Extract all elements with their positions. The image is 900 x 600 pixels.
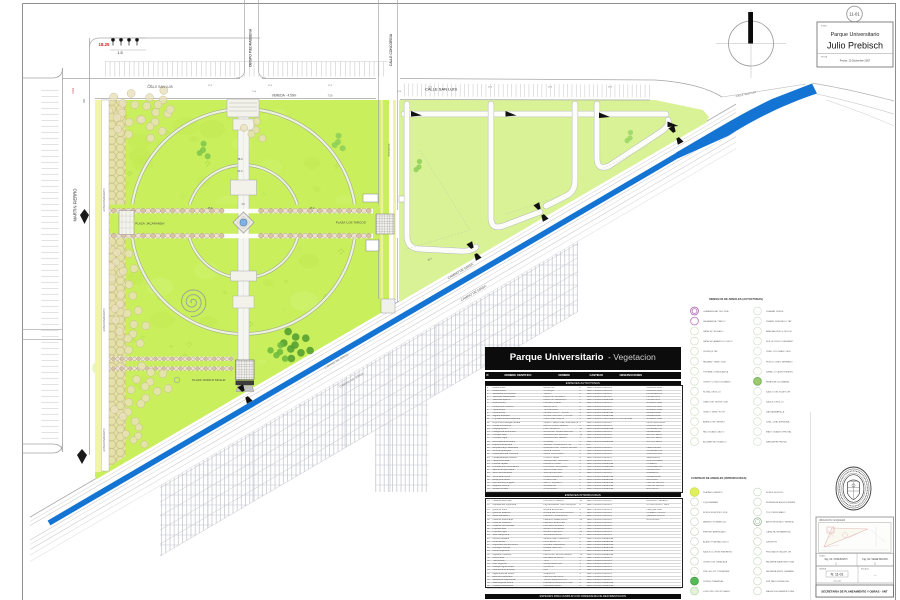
svg-text:N: 11-01: N: 11-01 xyxy=(831,573,844,577)
svg-text:LIQUIDAMBAR: LIQUIDAMBAR xyxy=(703,501,718,504)
svg-text:CALLE CONCORDIA: CALLE CONCORDIA xyxy=(389,33,393,66)
svg-text:PATAGUA TUCUMANA: PATAGUA TUCUMANA xyxy=(766,380,789,383)
svg-text:HORCO CEBIL SERRANO: HORCO CEBIL SERRANO xyxy=(766,360,793,363)
svg-text:LIGUSTRO DISCIPLINADO: LIGUSTRO DISCIPLINADO xyxy=(703,590,731,593)
svg-text:CATALPA ORNAMENTAL: CATALPA ORNAMENTAL xyxy=(766,531,792,534)
svg-text:3.04: 3.04 xyxy=(71,88,75,94)
svg-text:18.25: 18.25 xyxy=(99,42,111,47)
svg-text:CEDRO COYA TUCUMANO: CEDRO COYA TUCUMANO xyxy=(703,380,731,383)
svg-text:TIPUANA / TIPA BLANCA: TIPUANA / TIPA BLANCA xyxy=(703,370,729,373)
svg-text:ROBLE SEDOSO: ROBLE SEDOSO xyxy=(766,492,784,494)
svg-text:FECHA: FECHA xyxy=(821,56,828,59)
svg-text:ESTACIONAMIENTO: ESTACIONAMIENTO xyxy=(103,428,106,451)
svg-text:VIRARU DUAZNILLO TAY: VIRARU DUAZNILLO TAY xyxy=(766,320,792,323)
svg-text:PEZUNA DE VACA FLOR: PEZUNA DE VACA FLOR xyxy=(766,550,792,553)
svg-text:OBISPO PIEDRABUENA: OBISPO PIEDRABUENA xyxy=(249,28,253,67)
svg-text:BICISENDA: BICISENDA xyxy=(388,143,391,156)
svg-text:ESCALA: ESCALA xyxy=(861,568,869,571)
svg-text:MAGNOLIA GRANDIFLORA: MAGNOLIA GRANDIFLORA xyxy=(766,590,794,593)
svg-text:LAMINA: LAMINA xyxy=(819,568,827,571)
svg-text:PALO BLANCO ALTO: PALO BLANCO ALTO xyxy=(703,431,725,434)
svg-text:PALMERA FENIX CANARIA: PALMERA FENIX CANARIA xyxy=(766,570,794,573)
svg-text:ROBLE EUROPEO GDE: ROBLE EUROPEO GDE xyxy=(703,512,728,514)
svg-text:TILO PERFUMADO: TILO PERFUMADO xyxy=(766,511,786,514)
svg-text:4.9: 4.9 xyxy=(82,99,86,103)
svg-text:CEDRO DEL HIMALAYA: CEDRO DEL HIMALAYA xyxy=(703,560,728,563)
svg-text:CANTIDAD DE ARBOLES (INTROD: CANTIDAD DE ARBOLES (INTRODUCIDAS) xyxy=(691,476,747,480)
svg-text:CRESPON: CRESPON xyxy=(766,542,777,544)
svg-text:PLAZA 'HORCO MOLLE': PLAZA 'HORCO MOLLE' xyxy=(192,378,226,382)
svg-text:Julio Prebisch: Julio Prebisch xyxy=(827,41,883,51)
svg-text:CHANAR VERDE: CHANAR VERDE xyxy=(766,310,784,313)
svg-text:LAPACHO ROSADO: LAPACHO ROSADO xyxy=(703,330,724,333)
svg-text:KIRI PAULOWNIA GDE: KIRI PAULOWNIA GDE xyxy=(766,580,790,583)
svg-text:LANZA AMARILLA: LANZA AMARILLA xyxy=(766,411,785,414)
svg-text:JACARANDA / TARCO: JACARANDA / TARCO xyxy=(703,320,726,323)
svg-text:PALMERA WASHINGTONIA: PALMERA WASHINGTONIA xyxy=(766,560,794,563)
svg-text:SAUCE CRIOLLO: SAUCE CRIOLLO xyxy=(766,400,784,403)
svg-text:ESTACIONAMIENTO: ESTACIONAMIENTO xyxy=(103,188,106,211)
svg-text:VEREDA - 4.50m: VEREDA - 4.50m xyxy=(272,94,297,98)
svg-text:1.5: 1.5 xyxy=(117,51,122,55)
svg-text:SAUCO DEL NOA FLOR: SAUCO DEL NOA FLOR xyxy=(766,390,791,393)
svg-text:Fig. 01: CONJUNTO: Fig. 01: CONJUNTO xyxy=(825,558,848,561)
svg-text:ALGARROBO BLANCO: ALGARROBO BLANCO xyxy=(703,441,727,444)
svg-text:Fig. 02: VEGETACION: Fig. 02: VEGETACION xyxy=(862,558,887,561)
svg-text:45.0: 45.0 xyxy=(310,207,315,210)
svg-text:NANGAPIRI FRUTAL: NANGAPIRI FRUTAL xyxy=(766,441,788,444)
svg-text:ALAMO PLATEADO ALTO: ALAMO PLATEADO ALTO xyxy=(703,541,729,544)
svg-text:GUARANGUAY DEL NOA: GUARANGUAY DEL NOA xyxy=(703,310,729,313)
svg-text:45.0: 45.0 xyxy=(208,207,213,210)
svg-text:PLANO: PLANO xyxy=(821,25,828,28)
svg-text:SAUCE LLORON RIBERENO: SAUCE LLORON RIBERENO xyxy=(703,550,732,553)
svg-text:NOGAL CRIOLLO: NOGAL CRIOLLO xyxy=(703,390,721,393)
svg-text:CEBIL COLORADO GDE: CEBIL COLORADO GDE xyxy=(766,350,791,353)
svg-text:38.9: 38.9 xyxy=(237,157,243,161)
svg-text:CIPRES PIRAMIDAL: CIPRES PIRAMIDAL xyxy=(703,580,724,583)
svg-text:PINO ELLIOTTI PERENNE: PINO ELLIOTTI PERENNE xyxy=(703,571,730,573)
svg-text:SECRETARIA DE PLANEAMIENTO Y O: SECRETARIA DE PLANEAMIENTO Y OBRAS - UNT xyxy=(821,589,887,593)
svg-text:CEIBO / SEIBO FLOR: CEIBO / SEIBO FLOR xyxy=(703,412,725,414)
svg-text:11-01: 11-01 xyxy=(849,12,860,17)
svg-text:PLAZA 'JACARANDA': PLAZA 'JACARANDA' xyxy=(135,222,165,226)
svg-text:7.50: 7.50 xyxy=(328,95,333,98)
svg-text:31.6: 31.6 xyxy=(237,169,243,173)
svg-text:MORERA BLANCA SOMBRA: MORERA BLANCA SOMBRA xyxy=(766,501,795,504)
svg-text:—: — xyxy=(874,574,877,577)
svg-text:Fecha: 10 Diciembre 2007: Fecha: 10 Diciembre 2007 xyxy=(840,59,871,63)
svg-text:ESTACIONAMIENTO: ESTACIONAMIENTO xyxy=(103,308,106,331)
svg-text:AFATA LORO NEGRO: AFATA LORO NEGRO xyxy=(703,421,725,424)
svg-text:MOLLE TRUCO SERRANO: MOLLE TRUCO SERRANO xyxy=(766,340,793,343)
svg-text:esc s/d: esc s/d xyxy=(834,581,842,583)
svg-text:PARAISO SOMBRILLA: PARAISO SOMBRILLA xyxy=(703,521,726,524)
svg-text:OMBU DEL NORTE GDE: OMBU DEL NORTE GDE xyxy=(703,401,728,403)
svg-text:MATO GUABIYU FRUTAL: MATO GUABIYU FRUTAL xyxy=(766,431,792,434)
svg-text:ARCE NEGUNDO VEREDA: ARCE NEGUNDO VEREDA xyxy=(766,521,794,524)
svg-text:MARTIN FIERRO: MARTIN FIERRO xyxy=(73,188,78,222)
svg-text:LAPACHO AMARILLO CHICO: LAPACHO AMARILLO CHICO xyxy=(703,340,733,343)
svg-text:Parque Universitario: Parque Universitario xyxy=(831,32,880,38)
svg-text:CHURQUI TAY: CHURQUI TAY xyxy=(703,350,718,353)
svg-text:PLATANO HIBRIDO: PLATANO HIBRIDO xyxy=(703,491,723,494)
svg-text:UBICACION / ESQUEMA: UBICACION / ESQUEMA xyxy=(819,519,846,522)
svg-text:CHAL-CHAL AVIFAUNA: CHAL-CHAL AVIFAUNA xyxy=(766,421,790,424)
svg-text:FRESNO AMERICANO: FRESNO AMERICANO xyxy=(703,531,726,534)
svg-text:ANACAHUITA / H. MOLLE: ANACAHUITA / H. MOLLE xyxy=(766,330,792,333)
svg-text:ZAPALLO CASPI HUMEDO: ZAPALLO CASPI HUMEDO xyxy=(766,370,793,373)
svg-text:PLAZA 'LOS TARCOS': PLAZA 'LOS TARCOS' xyxy=(336,221,367,225)
svg-text:PACARA / TIMBO GDE: PACARA / TIMBO GDE xyxy=(703,360,726,363)
